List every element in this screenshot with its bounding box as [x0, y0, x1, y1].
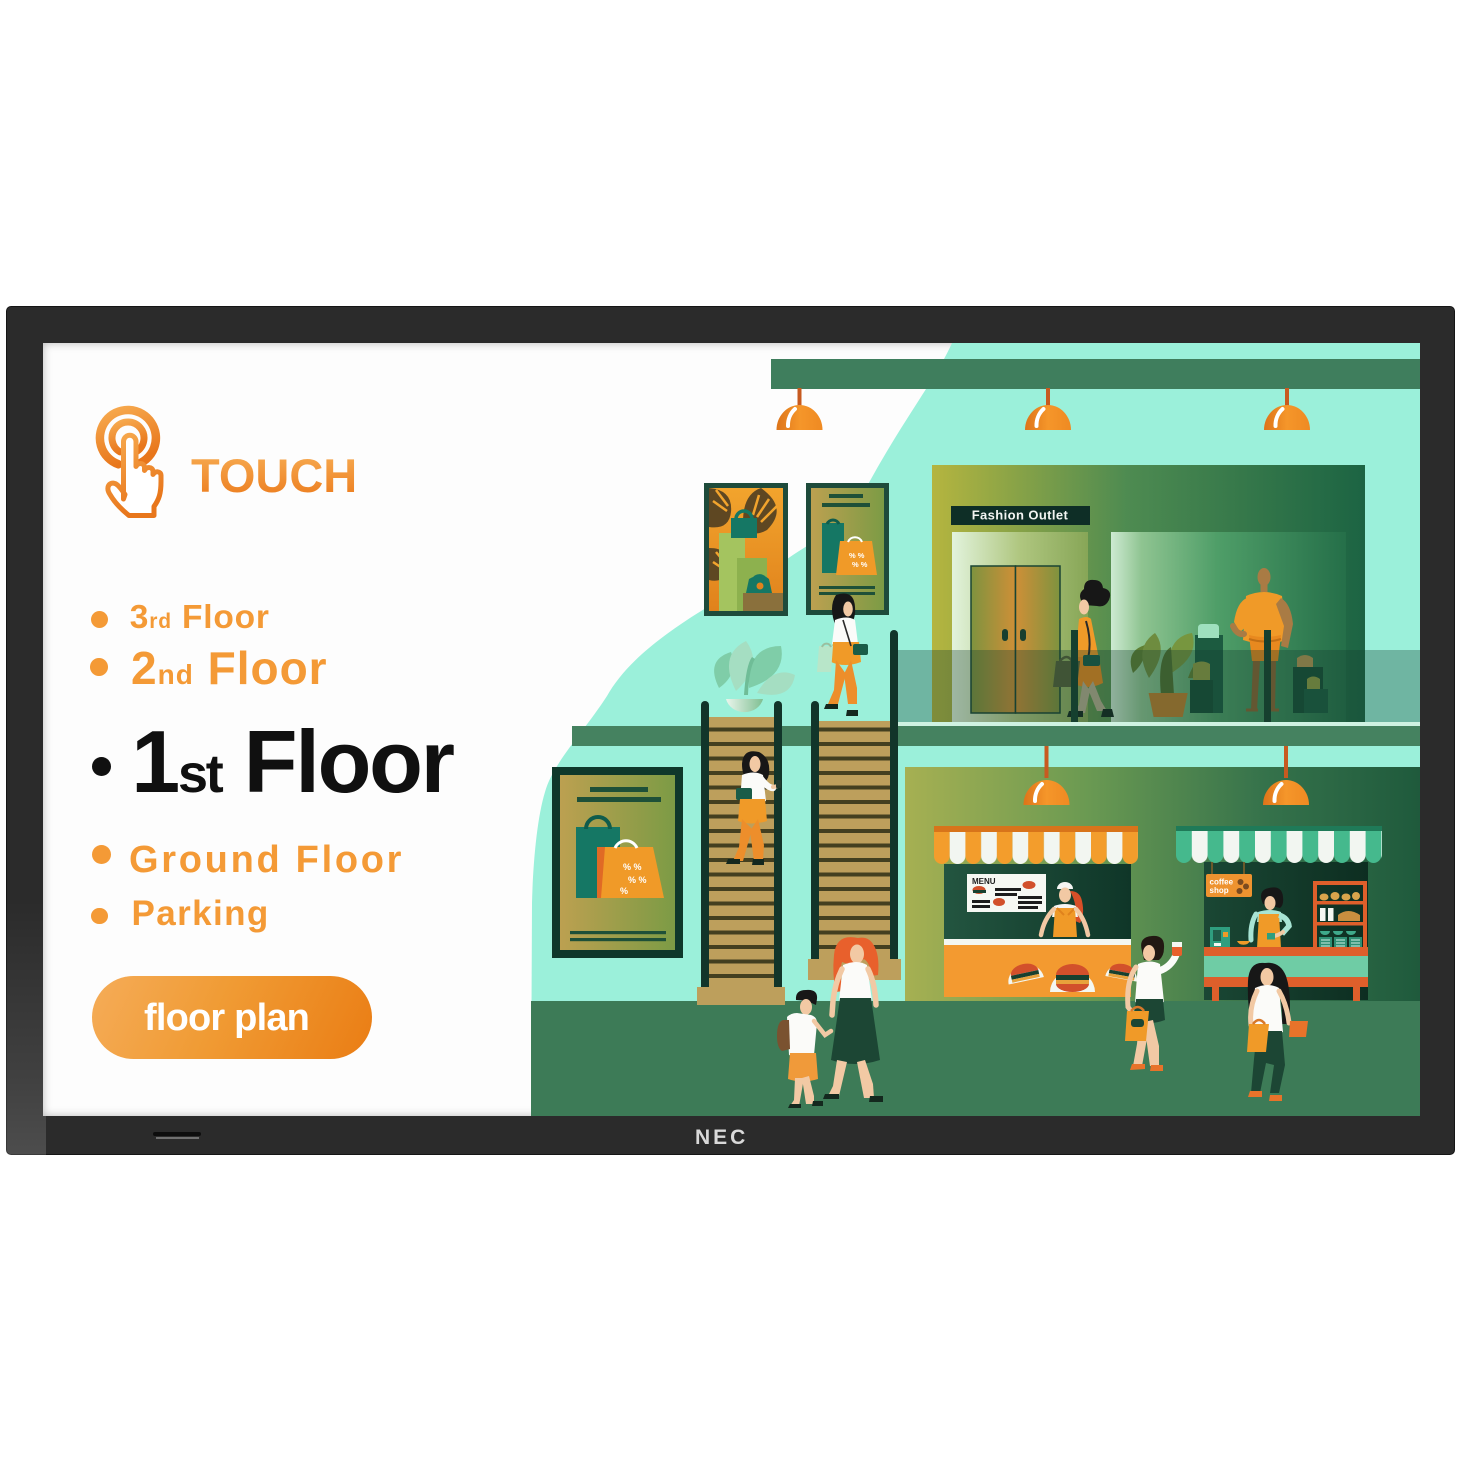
svg-text:% %: % % — [849, 551, 865, 560]
svg-text:%: % — [620, 886, 628, 896]
svg-text:% %: % % — [852, 560, 868, 569]
svg-text:% %: % % — [628, 875, 647, 885]
svg-text:MENU: MENU — [972, 877, 996, 886]
svg-text:% %: % % — [623, 862, 642, 872]
svg-text:Fashion Outlet: Fashion Outlet — [972, 508, 1069, 523]
svg-text:shop: shop — [1210, 886, 1229, 895]
